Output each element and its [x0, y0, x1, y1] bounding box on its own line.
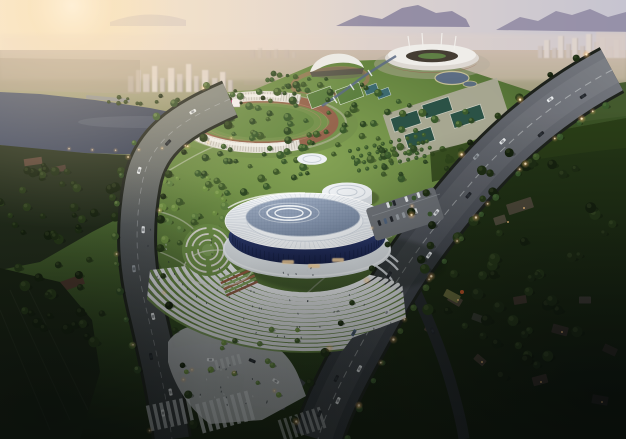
scene-svg: [0, 0, 626, 439]
atmosphere-overlays: [0, 0, 626, 439]
aerial-render: [0, 0, 626, 439]
